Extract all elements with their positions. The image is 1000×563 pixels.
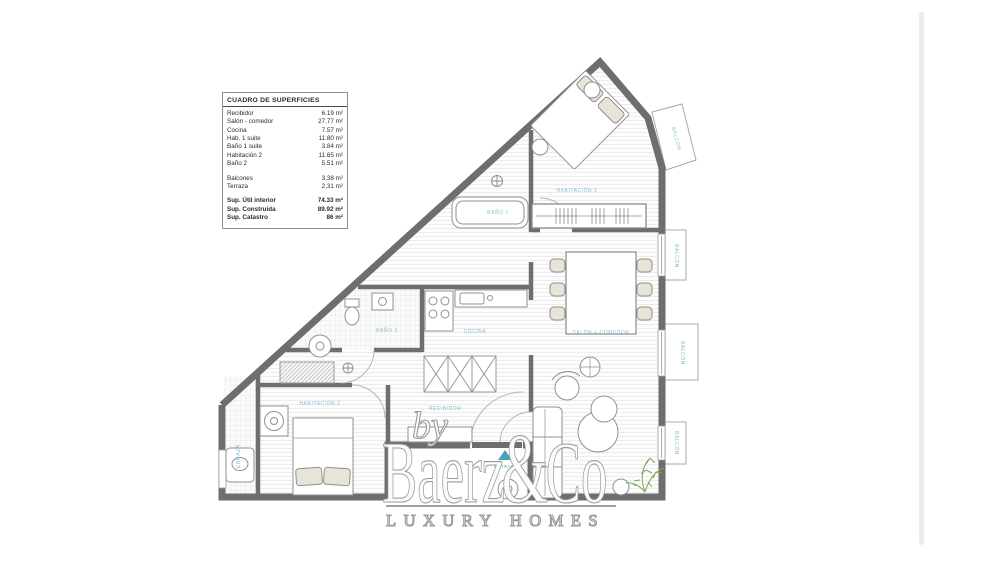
room-label-terraza: TERRAZA — [236, 444, 242, 471]
room-label-balcon-1: BALCÓN — [673, 244, 680, 268]
table-row: Balcones3,38 m² — [223, 175, 347, 183]
stove-icon — [425, 291, 453, 331]
surfaces-table-title: CUADRO DE SUPERFICIES — [223, 93, 347, 107]
row-label: Sup. Construida — [227, 206, 276, 214]
room-label-habitacion1: HABITACIÓN 1 — [557, 187, 598, 194]
row-value: 89.92 m² — [318, 206, 343, 214]
table-total-row: Sup. Construida89.92 m² — [223, 206, 347, 214]
room-label-recibidor: RECIBIDOR — [429, 406, 462, 412]
table-total-row: Sup. Catastro86 m² — [223, 214, 347, 222]
row-value: 7.57 m² — [322, 127, 343, 135]
ornament-icon — [498, 479, 518, 499]
sofa-icon — [533, 407, 562, 498]
row-value: 86 m² — [327, 214, 343, 222]
table-row: Hab. 1 suite11.80 m² — [223, 135, 347, 143]
basin-bano2-icon — [309, 335, 331, 357]
entrance-door — [472, 442, 522, 448]
wardrobe-habitacion1-icon — [532, 204, 646, 228]
row-value: 3,38 m² — [322, 175, 343, 183]
row-value: 74.33 m² — [318, 197, 343, 205]
bed-habitacion2-icon — [293, 418, 353, 495]
table-total-row: Sup. Útil interior74.33 m² — [223, 197, 347, 205]
toilet-icon — [345, 299, 359, 325]
entrance-arrow-icon — [498, 450, 512, 460]
row-value: 11.80 m² — [319, 135, 343, 143]
row-label: Baño 1 suite — [227, 143, 262, 151]
row-label: Salón - comedor — [227, 118, 273, 126]
kitchen-sink-icon — [455, 290, 527, 307]
table-row: Baño 1 suite3.84 m² — [223, 143, 347, 151]
row-label: Recibidor — [227, 110, 254, 118]
washing-machine-icon — [260, 406, 288, 436]
room-label-balcon-2: BALCÓN — [679, 341, 686, 365]
table-row: Salón - comedor27.77 m² — [223, 118, 347, 126]
row-value: 11.65 m² — [319, 152, 343, 160]
shower-icon — [492, 176, 503, 187]
table-row: Terraza2,31 m² — [223, 183, 347, 191]
table-row: Cocina7.57 m² — [223, 127, 347, 135]
floor-plan-svg: HABITACIÓN 1 BAÑO 1 BAÑO 2 COCINA SALÓN … — [0, 0, 1000, 563]
room-label-balcon-3: BALCÓN — [673, 431, 680, 455]
surfaces-table: CUADRO DE SUPERFICIES Recibidor6.19 m² S… — [222, 92, 348, 229]
row-label: Hab. 1 suite — [227, 135, 261, 143]
row-label: Sup. Catastro — [227, 214, 268, 222]
row-value: 6.19 m² — [322, 110, 343, 118]
room-label-salon: SALÓN + COMEDOR — [572, 329, 629, 336]
room-label-bano2: BAÑO 2 — [376, 327, 398, 334]
row-label: Habitación 2 — [227, 152, 262, 160]
room-label-habitacion2: HABITACIÓN 2 — [300, 400, 341, 407]
wardrobe-habitacion2-icon — [280, 362, 334, 383]
row-label: Sup. Útil interior — [227, 197, 276, 205]
row-label: Cocina — [227, 127, 247, 135]
row-value: 2,31 m² — [322, 183, 343, 191]
sink-bano2-icon — [372, 293, 393, 310]
entrance-label: ENTRADA — [494, 464, 517, 469]
shower-drain-icon — [343, 363, 353, 373]
kitchen-closets-icon — [424, 356, 496, 392]
table-row: Recibidor6.19 m² — [223, 110, 347, 118]
row-label: Baño 2 — [227, 160, 247, 168]
row-value: 27.77 m² — [318, 118, 343, 126]
row-label: Balcones — [227, 175, 253, 183]
row-value: 5.51 m² — [322, 160, 343, 168]
table-row: Habitación 211.65 m² — [223, 152, 347, 160]
scrollbar[interactable] — [919, 12, 924, 545]
room-label-cocina: COCINA — [464, 329, 487, 335]
room-label-bano1: BAÑO 1 — [487, 209, 509, 216]
page: HABITACIÓN 1 BAÑO 1 BAÑO 2 COCINA SALÓN … — [0, 0, 1000, 563]
console-icon — [408, 427, 472, 442]
row-label: Terraza — [227, 183, 248, 191]
row-value: 3.84 m² — [322, 143, 343, 151]
table-row: Baño 25.51 m² — [223, 160, 347, 168]
